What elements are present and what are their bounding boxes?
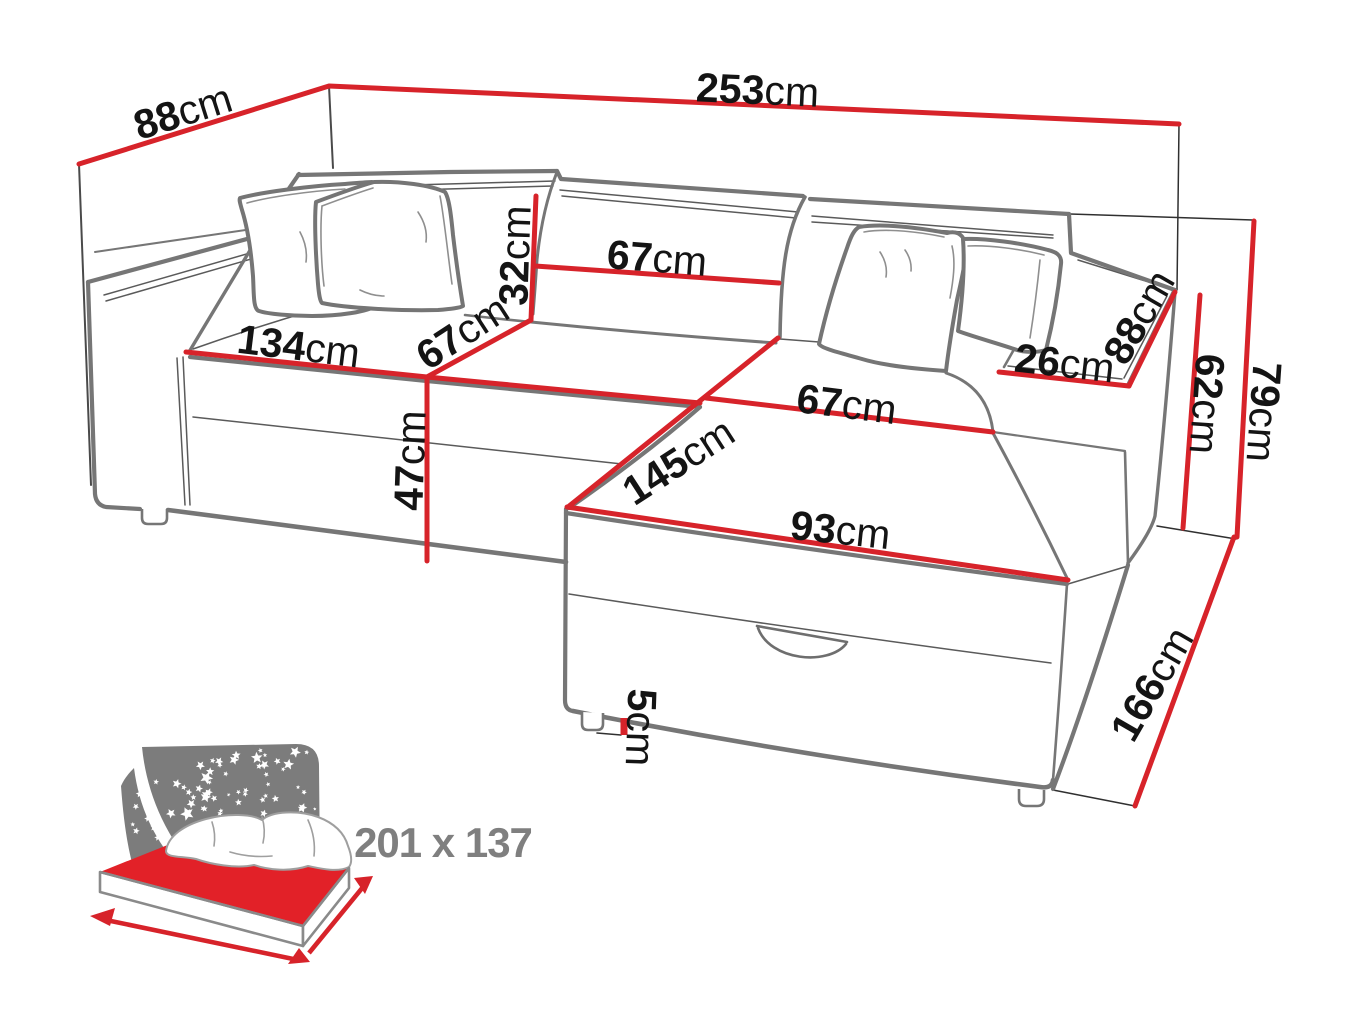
svg-text:67cm: 67cm [605, 231, 709, 285]
svg-text:79cm: 79cm [1238, 360, 1291, 463]
svg-text:62cm: 62cm [1181, 352, 1234, 455]
svg-text:32cm: 32cm [490, 205, 539, 307]
svg-text:5cm: 5cm [617, 688, 666, 767]
svg-text:47cm: 47cm [385, 410, 434, 512]
svg-text:253cm: 253cm [695, 64, 820, 116]
svg-text:201 x 137: 201 x 137 [354, 819, 532, 866]
